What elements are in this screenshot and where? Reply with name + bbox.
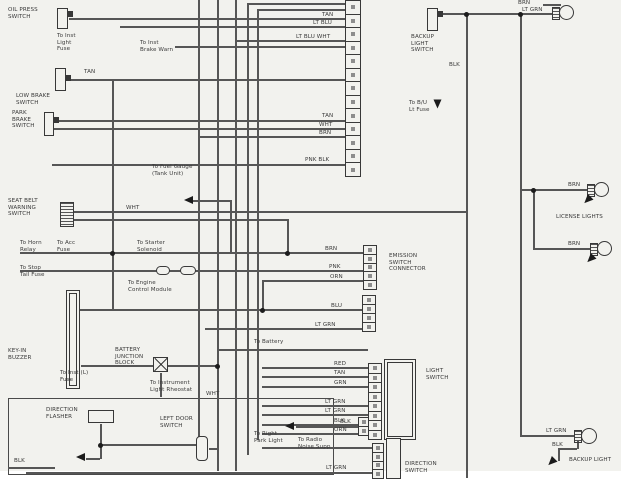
label-to-bu-light-fuse: To B/U Lt Fuse [409,100,430,113]
label-license-lights: LICENSE LIGHTS [556,214,603,221]
wire [192,200,230,202]
label-direction-flasher: DIRECTION FLASHER [46,407,78,420]
label-low-brake-switch: LOW BRAKE SWITCH [16,93,50,106]
label-to-acc-fuse: To Acc Fuse [57,240,75,253]
wire-label-blk: BLK [14,458,25,465]
wire-label-blk: BLK [449,62,460,69]
wire [67,79,345,81]
wire [262,367,368,369]
label-to-right-park-light: To Right Park Light [254,431,283,444]
light-switch-connector [368,363,382,440]
wire [80,309,362,311]
junction-dot [518,12,523,17]
wire [520,13,522,436]
label-to-inst-light-fuse: To Inst Light Fuse [57,33,76,53]
label-oil-press-switch: OIL PRESS SWITCH [8,7,38,20]
label-to-inst-rheostat: To Instrument Light Rheostat [150,380,192,393]
wire-label-blk: BLK [340,419,351,426]
oil-pressure-switch [57,8,68,29]
wire [296,426,358,428]
park-light-connector [358,417,369,436]
inline-connector-icon [180,266,196,275]
low-brake-switch [55,68,66,91]
label-seat-belt-switch: SEAT BELT WARNING SWITCH [8,198,38,218]
label-battery-junction-block: BATTERY JUNCTION BLOCK [115,347,143,367]
emission-connector-lower [362,295,376,332]
switch-arm-icon [438,11,443,17]
label-to-stop-tail-fuse: To Stop Tail Fuse [20,265,45,278]
label-emission-connector: EMISSION SWITCH CONNECTOR [389,253,426,273]
wire [558,448,560,461]
park-brake-switch [44,112,54,136]
wire-label-lt-grn: LT GRN [315,322,336,329]
wire [247,3,345,5]
license-light-lamp-2 [597,241,612,256]
label-backup-light-switch: BACKUP LIGHT SWITCH [411,34,434,54]
license-light-lamp-1 [594,182,609,197]
inline-connector-icon [156,266,170,275]
label-light-switch: LIGHT SWITCH [426,368,449,381]
junction-dot [464,12,469,17]
wire [217,0,219,471]
junction-dot [285,251,290,256]
ground-icon [76,453,85,461]
wire [100,444,196,446]
left-door-switch [196,436,208,461]
wire [466,13,468,478]
wire-label-lt-grn: LT GRN [325,399,346,406]
wire [262,376,368,378]
seat-belt-warning-switch [60,202,74,227]
wire [51,128,345,130]
wire-label-wht: WHT [126,205,139,212]
wire-label-orn: ORN [330,274,343,281]
label-to-radio: To Radio Noise Supp [298,437,331,450]
junction-dot [215,364,220,369]
wire-label-brn: BRN [319,130,331,137]
label-direction-switch: DIRECTION SWITCH [405,461,437,474]
label-key-in-buzzer: KEY-IN BUZZER [8,348,32,361]
wire-label-tan: TAN [84,69,95,76]
wire-label-lt-grn: LT GRN [325,408,346,415]
label-to-inst-fuse: To Inst (L) Fuse [60,370,88,383]
wire [74,219,287,221]
wire [235,0,237,471]
label-to-horn-relay: To Horn Relay [20,240,42,253]
wire-label-tan: TAN [334,370,345,377]
wire [262,280,363,282]
wire [257,9,345,11]
junction-dot [260,308,265,313]
wire [69,18,345,20]
wire-label-brn: BRN [518,0,530,7]
wire [257,9,259,440]
emission-connector-upper [363,245,377,290]
light-switch-inner-wall [387,362,413,437]
battery-junction-block [153,357,168,372]
light-switch [384,359,416,440]
junction-dot [531,188,536,193]
wire-label-orn: ORN [334,427,347,434]
label-to-fuel-gauge: To Fuel Gauge (Tank Unit) [152,164,193,177]
switch-arm-icon [66,75,71,81]
backup-light-lamp [581,428,597,444]
wire [175,46,345,48]
wire-label-lt-blu-wht: LT BLU WHT [296,34,330,41]
fuse-arrow-icon [434,100,442,109]
wire-label-brn: BRN [568,182,580,189]
wire-label-pnk: PNK [329,264,341,271]
wire [287,219,289,253]
wire-label-wht: WHT [319,122,332,129]
wire-label-lt-blu: LT BLU [313,20,332,27]
label-to-battery: To Battery [254,339,283,346]
wire [262,280,264,310]
label-to-starter-solenoid: To Starter Solenoid [137,240,165,253]
wire [86,458,100,460]
wire-label-brn: BRN [568,241,580,248]
wire-label-blk: BLK [552,442,563,449]
wire [217,349,368,351]
wire [112,79,114,310]
label-left-door-switch: LEFT DOOR SWITCH [160,416,193,429]
backup-light-switch [427,8,438,31]
wire [262,386,368,388]
direction-flasher [88,410,114,423]
wire-label-brn: BRN [325,246,337,253]
label-backup-light: BACKUP LIGHT [569,457,611,464]
wire [262,414,368,416]
wire [120,26,345,28]
wire [51,120,345,122]
switch-arm-icon [68,11,73,17]
wire [198,0,200,460]
wire-label-tan: TAN [322,113,333,120]
wire-label-lt-grn: LT GRN [326,465,347,472]
label-to-engine-control-module: To Engine Control Module [128,280,172,293]
bulkhead-connector [345,0,361,177]
wire-label-red: RED [334,361,346,368]
wire [230,200,232,253]
wire [168,365,217,367]
wire [533,248,590,250]
wire-label-lt-grn: LT GRN [546,428,567,435]
wire [8,467,55,469]
wire-label-grn: GRN [334,380,347,387]
ground-icon [184,196,193,204]
wire-label-pnk-blk: PNK BLK [305,157,329,164]
wiring-diagram: OIL PRESS SWITCH To Inst Light Fuse To I… [0,0,640,480]
junction-dot [98,443,103,448]
wire [26,472,372,474]
ground-icon [285,422,294,430]
wire-label-tan: TAN [322,12,333,19]
wire [262,405,368,407]
wire-label-lt-grn: LT GRN [522,7,543,14]
junction-dot [110,251,115,256]
wire-label-wht: WHT [206,391,219,398]
wire [247,3,249,455]
wire-label-blu: BLU [331,303,342,310]
direction-switch-connector [372,443,384,479]
wire [205,328,362,330]
label-to-inst-brake-warn: To Inst Brake Warn [140,40,173,53]
wire [209,448,217,450]
tail-light-lamp [559,5,574,20]
wire [533,189,535,249]
switch-arm-icon [54,117,59,123]
wire [100,424,102,459]
label-park-brake-switch: PARK BRAKE SWITCH [12,110,35,130]
wire [52,164,345,166]
direction-switch [386,438,401,479]
wire [543,4,561,6]
wire [520,435,574,437]
